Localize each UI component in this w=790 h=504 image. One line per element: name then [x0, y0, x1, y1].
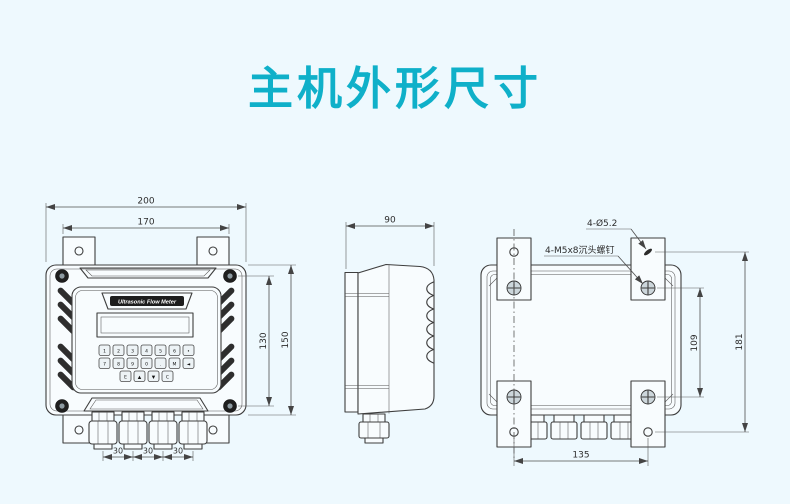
keypad-key: 8 — [113, 358, 124, 369]
page: 主机外形尺寸 — [0, 0, 790, 504]
lcd-display — [97, 313, 193, 337]
svg-text:170: 170 — [137, 218, 154, 228]
tab-hole — [644, 428, 652, 436]
svg-text:3: 3 — [131, 348, 134, 354]
svg-text:M: M — [173, 361, 177, 367]
svg-text:6: 6 — [173, 348, 176, 354]
svg-text:▲: ▲ — [138, 375, 142, 380]
cable-gland — [89, 412, 117, 449]
cable-gland — [581, 415, 607, 439]
svg-text:E: E — [124, 374, 127, 380]
svg-text:1: 1 — [103, 348, 106, 354]
front-panel: Ultrasonic Flow Meter — [72, 287, 221, 393]
svg-text:130: 130 — [259, 332, 269, 349]
cross-screw — [641, 390, 655, 404]
outline-dimension-drawing: Ultrasonic Flow Meter 1 2 3 4 5 6 • 7 8 … — [0, 0, 790, 504]
svg-text:150: 150 — [281, 331, 291, 348]
keypad-key: 3 — [127, 345, 138, 356]
device-label: Ultrasonic Flow Meter — [118, 300, 177, 306]
dimension-width-tabs: 170 — [63, 218, 229, 235]
cable-gland — [179, 412, 207, 449]
cable-gland — [119, 412, 147, 449]
svg-text:.: . — [160, 362, 161, 367]
keypad-key: • — [183, 345, 194, 356]
dimension-hole-spacing-h: 135 — [514, 438, 648, 466]
keypad-key: 1 — [99, 345, 110, 356]
keypad-key: ▲ — [134, 371, 145, 382]
side-view: 90 — [345, 216, 434, 444]
keypad-key: 2 — [113, 345, 124, 356]
svg-text:•: • — [187, 349, 190, 354]
svg-text:0: 0 — [145, 361, 148, 367]
keypad-key: 9 — [127, 358, 138, 369]
dimension-height-body: 150 — [248, 265, 296, 415]
front-view: Ultrasonic Flow Meter 1 2 3 4 5 6 • 7 8 … — [46, 197, 296, 462]
keypad-key: ◄ — [183, 358, 194, 369]
svg-text:181: 181 — [735, 333, 745, 350]
back-cable-glands — [521, 415, 637, 439]
svg-text:C: C — [166, 374, 169, 380]
svg-text:2: 2 — [117, 348, 120, 354]
svg-text:7: 7 — [103, 361, 106, 367]
svg-text:30: 30 — [143, 447, 153, 456]
keypad-key: . — [155, 358, 166, 369]
keypad-key: ▼ — [148, 371, 159, 382]
keypad-key: 6 — [169, 345, 180, 356]
svg-text:30: 30 — [173, 447, 183, 456]
keypad-key: C — [162, 371, 173, 382]
svg-text:109: 109 — [690, 334, 700, 351]
cable-gland — [551, 415, 577, 439]
svg-text:200: 200 — [137, 197, 154, 207]
front-cable-glands — [89, 412, 207, 449]
keypad-key: 4 — [141, 345, 152, 356]
svg-text:5: 5 — [159, 348, 162, 354]
svg-text:135: 135 — [572, 451, 589, 461]
svg-text:4-Ø5.2: 4-Ø5.2 — [587, 218, 617, 229]
svg-text:◄: ◄ — [187, 362, 191, 367]
dimension-gland-spacing: 30 30 30 — [103, 447, 193, 462]
keypad-key: 7 — [99, 358, 110, 369]
svg-text:9: 9 — [131, 361, 134, 367]
side-enclosure-body — [358, 265, 434, 415]
cable-gland — [149, 412, 177, 449]
svg-text:▼: ▼ — [152, 375, 156, 380]
keypad-key: M — [169, 358, 180, 369]
back-view: 4-Ø5.2 4-M5x8沉头螺钉 109 181 — [481, 218, 749, 466]
keypad-key: E — [120, 371, 131, 382]
svg-text:30: 30 — [113, 447, 123, 456]
keypad-key: 5 — [155, 345, 166, 356]
svg-text:8: 8 — [117, 361, 120, 367]
svg-text:90: 90 — [384, 216, 396, 226]
svg-text:4-M5x8沉头螺钉: 4-M5x8沉头螺钉 — [545, 245, 615, 256]
dimension-depth: 90 — [346, 216, 434, 270]
svg-text:4: 4 — [145, 348, 148, 354]
cable-gland — [359, 414, 389, 443]
cross-screw — [641, 281, 655, 295]
keypad-key: 0 — [141, 358, 152, 369]
